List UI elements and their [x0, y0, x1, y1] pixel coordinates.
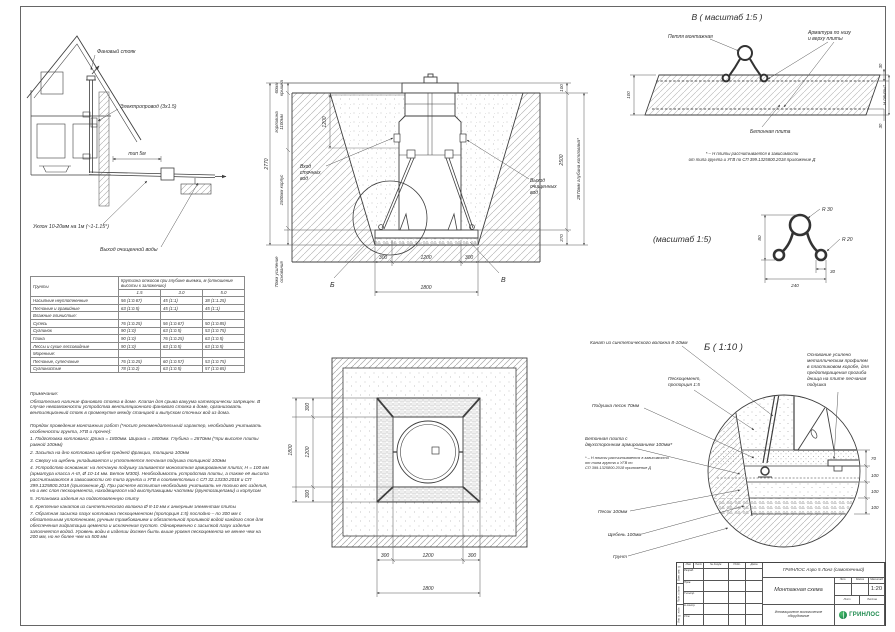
dim-1800b: 1800 [420, 285, 431, 291]
dim-30: 30 [830, 269, 836, 274]
dim-h-plity: Н плиты* [882, 85, 887, 105]
detail-v: В ( масштаб 1:5 ) Петля монтажная Армату… [612, 8, 892, 168]
house-wall-hatched [99, 92, 109, 206]
plan-dim-300l: 300 [381, 553, 390, 559]
house-section-sketch: Фановый стояк Электропровод (3х1.5) тип … [25, 28, 270, 268]
dim-100a: 100 [871, 473, 879, 478]
tb-empty [746, 569, 763, 581]
side-cell: Взам. инв. № [677, 563, 684, 584]
rebar-label-2: и верху плиты [808, 36, 843, 42]
table-row: Песчаные и гравийные63 (1:0.5)45 (1:1)45… [31, 304, 245, 312]
tb-row-utv: Утв. [684, 615, 704, 625]
cushion-label: Подушка песок 70мм [592, 403, 640, 409]
company-logo: ГРИНЛОС [835, 605, 885, 626]
detail-v-footnote-2: от типа грунта и УГВ по СП 399.1325800.2… [689, 157, 816, 162]
tb-empty [704, 581, 729, 593]
base-note-6: подушка [807, 382, 827, 388]
radius-30-label: R 30 [822, 207, 833, 213]
tb-empty [704, 569, 729, 581]
grinlos-brand-text: ГРИНЛОС [849, 612, 880, 618]
document-name: ГРИНЛОС Аэро 5 Лонг (самотечный) [763, 563, 885, 578]
dim-100c: 100 [871, 505, 879, 510]
tb-empty [746, 615, 763, 625]
base-note-1: Основание усилено [807, 352, 851, 358]
dim-30-bot: 30 [878, 123, 883, 128]
distance-label: тип 5м [128, 151, 146, 157]
sand-label: Песок 100мм [598, 509, 628, 515]
tb-empty [729, 581, 746, 593]
base-note-5: днища на плите песчаная [807, 376, 867, 382]
company-tagline: Инновационное экологическое оборудование [763, 605, 835, 626]
inlet-label-3: вод [300, 176, 308, 182]
table-row: Песчаные, супесчаные76 (1:0.25)60 (1:0.5… [31, 357, 245, 365]
dim-80: 80 [757, 235, 762, 241]
tb-empty [704, 592, 729, 604]
dim-depth: 2870мм глубина котлована* [576, 138, 581, 201]
loop-shape [774, 215, 826, 260]
base-note-2: металлическим профилем [807, 358, 869, 364]
loop-detail-title: (масштаб 1:5) [653, 234, 711, 244]
base-note-3: в пластиковом коробе, для [807, 364, 869, 370]
table-col-30: 3.0 [161, 289, 203, 297]
base-note-4: предотвращения прогиба [807, 370, 867, 376]
plan-dim-1200l: 1200 [305, 446, 311, 457]
tb-empty [729, 592, 746, 604]
dim-1200-neck: 1200 [322, 116, 328, 127]
plan-dim-1200b: 1200 [422, 553, 433, 559]
callout-b-label: Б [330, 282, 335, 289]
dim-100: 100 [559, 84, 564, 92]
sewer-pipe [89, 168, 226, 194]
slab-and-gravel [375, 230, 478, 245]
pesco-label-1: Пескоцемент, [668, 376, 701, 382]
dim-cover-2: крышка [279, 79, 284, 95]
table-header-main: Крутизна откосов при глубине выемки, м (… [119, 277, 245, 290]
tb-empty [835, 584, 852, 596]
dim-neck-2: 1100мм [279, 114, 284, 129]
detail-b-layers [694, 388, 895, 559]
tb-empty [729, 604, 746, 616]
table-row: Моренные: [31, 350, 245, 358]
table-row: Лессы и сухие лессовидные90 (1:0)63 (1:0… [31, 342, 245, 350]
plan-dim-1800b: 1800 [422, 586, 433, 592]
loop-label: Петля монтажная [668, 34, 713, 40]
detail-v-title: В ( масштаб 1:5 ) [692, 12, 763, 22]
tb-empty [746, 592, 763, 604]
dim-70: 70 [871, 456, 877, 461]
plan-dim-300r: 300 [468, 553, 477, 559]
fan-stack-label: Фановый стояк [97, 48, 136, 55]
detail-b: Б ( 1:10 ) [582, 330, 895, 575]
table-row: Суглинок90 (1:0)63 (1:0.5)53 (1:0.75) [31, 327, 245, 335]
dim-30-top: 30 [878, 63, 883, 68]
footnote-3: СП 399.1325800.2018 приложение Д [585, 465, 651, 470]
loop-dims [761, 209, 840, 283]
dim-100b: 100 [871, 489, 879, 494]
outlet-label-3: вод [530, 190, 538, 196]
table-row: Влажные глинистые: [31, 312, 245, 320]
tb-row-prov: Пров. [684, 581, 704, 593]
notes-step-2: 2. Засыпка на дно котлована щебня средне… [30, 450, 270, 456]
table-row: Супесь76 (1:0.25)56 (1:0.67)50 (1:0.85) [31, 319, 245, 327]
side-cell: Подп. и дата [677, 584, 684, 605]
tb-list: Лист [835, 596, 860, 605]
dim-240: 240 [790, 283, 799, 288]
tb-empty [704, 615, 729, 625]
tb-row-tkontr: Т.контр. [684, 592, 704, 604]
dim-2500: 2500 [559, 154, 565, 166]
drawing-sheet: Фановый стояк Электропровод (3х1.5) тип … [0, 0, 895, 632]
detail-v-footnote-1: * – Н плиты рассчитывается в зависимости [706, 151, 799, 156]
tb-row-nkontr: Н.контр. [684, 604, 704, 616]
rope-label: Канат из синтетического волокна 8-10мм [590, 340, 688, 346]
notes-step-6: 6. Крепление канатов из синтетического в… [30, 504, 270, 510]
table-row: Глина90 (1:0)76 (1:0.25)63 (1:0.5) [31, 335, 245, 343]
soil-slope-table: Грунты Крутизна откосов при глубине выем… [30, 276, 245, 373]
slab-label-2: двухсторонним армированием 100мм* [585, 442, 672, 448]
table-row: Суглинистые78 (1:0.2)63 (1:0.5)57 (1:0.6… [31, 365, 245, 373]
dim-300r: 300 [465, 255, 474, 261]
dim-370: 370 [559, 234, 564, 242]
scale-value: 1:20 [869, 584, 885, 596]
tb-empty [746, 581, 763, 593]
grinlos-globe-icon [839, 611, 847, 619]
electric-wire-label: Электропровод (3х1.5) [120, 104, 177, 110]
slab-label: Бетонная плита [750, 129, 791, 135]
notes-para: Обязательно наличие фанового стояка в до… [30, 399, 270, 416]
tb-listov: Листов [860, 596, 885, 605]
table-header-soil: Грунты [31, 277, 119, 297]
slab-label-1: Бетонная плита с [585, 436, 628, 442]
dim-100-slab: 100 [626, 91, 631, 99]
water-out-label: Выход очищенной воды [100, 246, 158, 253]
dim-300l: 300 [379, 255, 388, 261]
title-block: Взам. инв. № Подп. и дата Инв. № подл. И… [676, 562, 886, 626]
tb-empty [729, 615, 746, 625]
notes-heading: Примечание: [30, 391, 270, 397]
tb-empty [704, 604, 729, 616]
table-col-15: 1.5 [119, 289, 161, 297]
tank-body [394, 74, 466, 230]
tb-empty [729, 569, 746, 581]
pit-cross-section: Б В Вход сточных вод Выход очищенных вод… [262, 30, 627, 320]
tb-row-razrab: Разраб. [684, 569, 704, 581]
fan-stack-pipe [39, 66, 99, 173]
dim-total-left: 2770 [264, 158, 270, 170]
pesco-label-2: пропорция 1:5 [668, 382, 700, 388]
notes-step-7: 7. Обратная засыпка пазух котлована песк… [30, 511, 270, 540]
dim-base-2: основания [279, 261, 284, 283]
dim-body: 1500мм корпус [279, 174, 284, 206]
installation-notes: Примечание: Обязательно наличие фанового… [30, 391, 270, 542]
notes-step-3: 3. Сверху на щебень укладывается и уплот… [30, 458, 270, 464]
radius-20-label: R 20 [842, 237, 853, 243]
notes-step-1: 1. Подготовка котлована: Длина = 1800мм.… [30, 436, 270, 447]
tb-empty [746, 604, 763, 616]
table-col-50: 5.0 [203, 289, 245, 297]
plan-dim-1800l: 1800 [288, 444, 294, 455]
side-cell: Инв. № подл. [677, 605, 684, 626]
notes-para: Порядок проведения монтажных работ (*нос… [30, 423, 270, 434]
sheet-title: Монтажная схема [763, 578, 835, 605]
slope-label: Уклон 10-20мм на 1м (~1-1.15°) [33, 224, 109, 230]
dim-1200b: 1200 [420, 255, 431, 261]
soil-label: Грунт [613, 554, 627, 560]
detail-b-title: Б ( 1:10 ) [704, 342, 743, 353]
plan-dim-300b: 300 [305, 490, 311, 499]
notes-step-4: 4. Устройство основания: на песчаную под… [30, 465, 270, 494]
loop-detail: (масштаб 1:5) R 30 R 20 80 30 240 [615, 195, 890, 300]
plan-dim-300t: 300 [305, 403, 311, 412]
pit-plan-view: 300 1200 300 1800 300 1200 300 1800 [282, 335, 582, 610]
gravel-label: Щебень 100мм [608, 532, 642, 538]
table-row: Насыпные неуплотненные56 (1:0.67)45 (1:1… [31, 297, 245, 305]
notes-step-5: 5. Установка изделия на подготовленную п… [30, 496, 270, 502]
callout-v-label: В [501, 277, 506, 284]
tb-empty [852, 584, 869, 596]
